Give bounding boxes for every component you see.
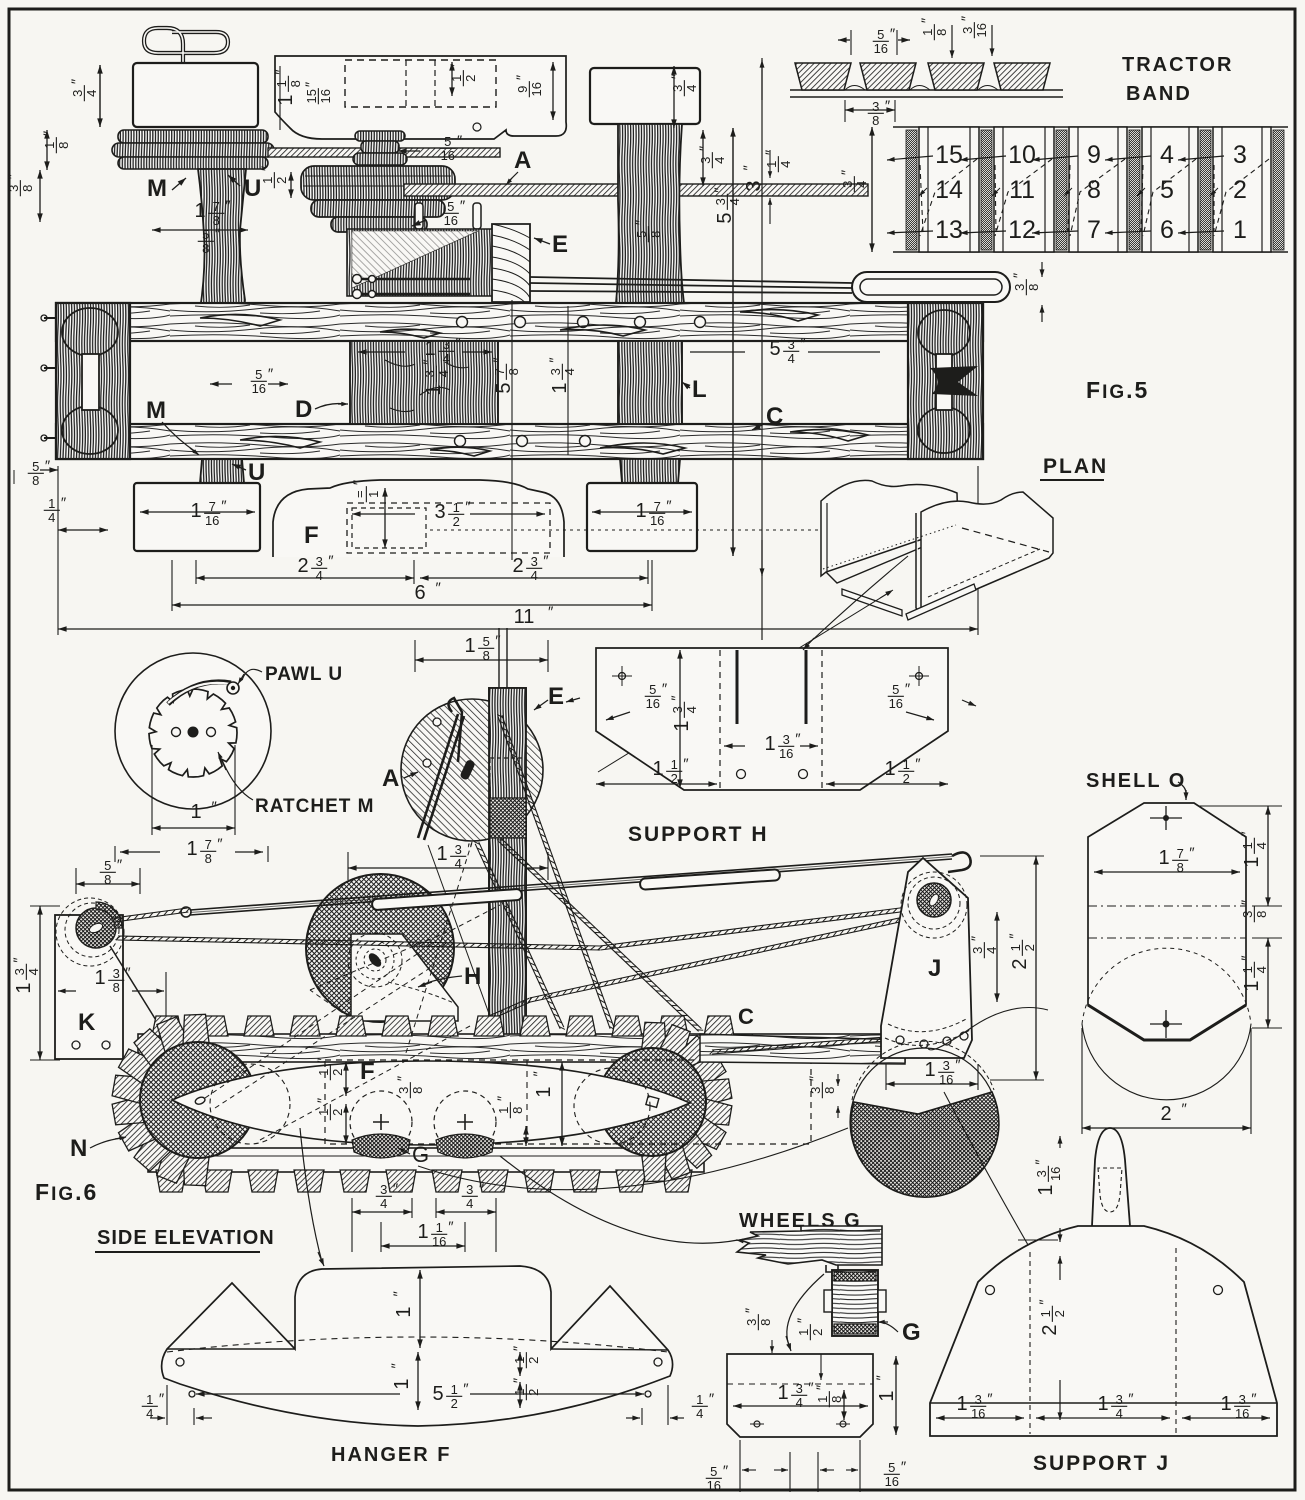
svg-text:″: ″ [5, 173, 22, 179]
svg-text:2: 2 [1052, 1310, 1067, 1317]
svg-text:″: ″ [455, 336, 461, 353]
svg-text:6: 6 [1160, 216, 1174, 244]
svg-text:1: 1 [671, 720, 693, 731]
svg-text:3: 3 [6, 185, 21, 192]
svg-text:4: 4 [380, 1196, 387, 1211]
svg-text:3: 3 [743, 180, 765, 191]
svg-text:10: 10 [1008, 141, 1036, 169]
svg-text:2: 2 [330, 1109, 345, 1116]
svg-text:16: 16 [441, 148, 455, 163]
svg-text:1: 1 [512, 1389, 527, 1396]
svg-text:1: 1 [42, 142, 57, 149]
svg-text:5: 5 [493, 382, 515, 393]
svg-text:3: 3 [970, 947, 985, 954]
svg-text:C: C [738, 1004, 754, 1029]
svg-text:″: ″ [303, 81, 320, 87]
svg-text:1: 1 [190, 801, 201, 823]
svg-text:4: 4 [984, 947, 999, 954]
svg-text:F: F [360, 1058, 375, 1085]
svg-text:3: 3 [443, 337, 450, 352]
svg-text:16: 16 [444, 213, 458, 228]
svg-text:″: ″ [905, 681, 911, 698]
svg-text:16: 16 [529, 82, 544, 96]
svg-text:11: 11 [1009, 176, 1035, 204]
svg-text:″: ″ [890, 26, 896, 43]
svg-text:3: 3 [380, 1182, 387, 1197]
svg-text:1: 1 [652, 758, 663, 780]
svg-text:4: 4 [455, 856, 462, 871]
svg-text:16: 16 [889, 696, 903, 711]
svg-text:U: U [244, 175, 261, 202]
svg-text:7: 7 [492, 368, 507, 375]
svg-text:8: 8 [648, 231, 663, 238]
svg-text:″: ″ [514, 74, 531, 80]
svg-text:1: 1 [1035, 1184, 1057, 1195]
svg-text:J: J [928, 955, 941, 982]
svg-text:1: 1 [146, 1392, 153, 1407]
svg-text:1: 1 [453, 500, 460, 515]
svg-text:″: ″ [159, 1391, 165, 1408]
svg-text:″: ″ [763, 149, 780, 155]
svg-text:″: ″ [1239, 831, 1256, 837]
svg-text:″: ″ [395, 1075, 412, 1081]
svg-text:2: 2 [453, 514, 460, 529]
svg-text:7: 7 [213, 199, 220, 214]
svg-text:4: 4 [712, 157, 727, 164]
svg-text:1: 1 [48, 496, 55, 511]
svg-text:1: 1 [764, 733, 775, 755]
svg-text:2: 2 [330, 1069, 345, 1076]
svg-text:4: 4 [1254, 966, 1269, 973]
svg-text:3: 3 [960, 27, 975, 34]
svg-text:″: ″ [315, 1057, 332, 1063]
svg-text:2: 2 [1233, 176, 1247, 204]
svg-text:″: ″ [531, 1070, 548, 1076]
svg-text:5: 5 [104, 858, 111, 873]
svg-text:″: ″ [495, 1095, 512, 1101]
svg-text:1: 1 [1158, 847, 1169, 869]
svg-text:8: 8 [872, 113, 879, 128]
svg-text:TRACTOR: TRACTOR [1122, 54, 1233, 76]
svg-text:1: 1 [1220, 1393, 1231, 1415]
svg-text:3: 3 [1012, 284, 1027, 291]
svg-text:15: 15 [935, 141, 963, 169]
svg-text:3: 3 [1116, 1392, 1123, 1407]
svg-text:″: ″ [795, 1317, 812, 1323]
svg-text:1: 1 [194, 200, 205, 222]
svg-text:1: 1 [464, 635, 475, 657]
svg-text:1: 1 [316, 1109, 331, 1116]
svg-text:5: 5 [432, 1383, 443, 1405]
svg-text:4: 4 [436, 370, 451, 377]
svg-text:3: 3 [1240, 911, 1255, 918]
svg-text:″: ″ [217, 836, 223, 853]
svg-text:4: 4 [443, 351, 450, 366]
svg-text:4: 4 [1160, 141, 1174, 169]
svg-text:″: ″ [800, 336, 806, 353]
svg-text:4: 4 [48, 510, 55, 525]
svg-text:″: ″ [511, 1345, 528, 1351]
svg-text:4: 4 [146, 1406, 153, 1421]
svg-text:″: ″ [712, 187, 729, 193]
svg-text:A: A [382, 765, 399, 792]
svg-text:″: ″ [215, 226, 221, 243]
svg-text:8: 8 [822, 1087, 837, 1094]
svg-text:3: 3 [466, 1182, 473, 1197]
svg-text:2: 2 [1039, 1324, 1061, 1335]
svg-text:F: F [304, 522, 319, 549]
svg-text:4: 4 [854, 181, 869, 188]
svg-text:4: 4 [727, 198, 742, 205]
svg-text:″: ″ [807, 1075, 824, 1081]
svg-text:″: ″ [959, 15, 976, 21]
svg-text:″: ″ [351, 479, 368, 485]
svg-text:″: ″ [117, 857, 123, 874]
svg-text:2: 2 [1022, 944, 1037, 951]
svg-text:″: ″ [212, 799, 218, 816]
svg-text:″: ″ [391, 1290, 408, 1296]
svg-text:8: 8 [113, 980, 120, 995]
svg-text:″: ″ [547, 357, 564, 363]
svg-text:″: ″ [1033, 1159, 1050, 1165]
svg-text:2: 2 [903, 771, 910, 786]
svg-text:RATCHET M: RATCHET M [255, 796, 374, 817]
svg-text:1: 1 [316, 1069, 331, 1076]
svg-text:12: 12 [1008, 216, 1036, 244]
svg-text:M: M [147, 175, 167, 202]
svg-text:3: 3 [531, 554, 538, 569]
svg-text:″: ″ [669, 695, 686, 701]
svg-text:3: 3 [788, 337, 795, 352]
svg-text:″: ″ [491, 357, 508, 363]
svg-text:7: 7 [1087, 216, 1101, 244]
svg-text:″: ″ [839, 169, 856, 175]
svg-text:3: 3 [548, 368, 563, 375]
svg-text:″: ″ [795, 731, 801, 748]
svg-text:″: ″ [268, 366, 274, 383]
svg-text:4: 4 [778, 161, 793, 168]
svg-text:″: ″ [511, 1377, 528, 1383]
svg-text:1: 1 [436, 1220, 443, 1235]
svg-text:16: 16 [707, 1478, 721, 1493]
svg-text:16: 16 [974, 23, 989, 37]
svg-text:″: ″ [1037, 1299, 1054, 1305]
svg-text:2: 2 [810, 1329, 825, 1336]
svg-text:1: 1 [764, 161, 779, 168]
svg-text:1: 1 [417, 1221, 428, 1243]
svg-text:1: 1 [884, 758, 895, 780]
svg-text:1: 1 [1240, 842, 1255, 849]
svg-text:″: ″ [315, 1097, 332, 1103]
svg-text:5: 5 [202, 227, 209, 242]
svg-text:16: 16 [971, 1406, 985, 1421]
svg-text:3: 3 [434, 501, 445, 523]
svg-text:3: 3 [670, 706, 685, 713]
svg-text:8: 8 [104, 872, 111, 887]
svg-text:3: 3 [455, 842, 462, 857]
svg-text:1: 1 [1233, 216, 1247, 244]
svg-text:1: 1 [956, 1393, 967, 1415]
svg-text:″: ″ [389, 1362, 406, 1368]
svg-text:1: 1 [190, 500, 201, 522]
svg-text:1: 1 [876, 1390, 898, 1401]
svg-text:″: ″ [457, 133, 463, 150]
svg-text:4: 4 [1116, 1406, 1123, 1421]
svg-text:5: 5 [483, 634, 490, 649]
svg-text:1: 1 [903, 757, 910, 772]
svg-text:K: K [78, 1009, 96, 1036]
svg-text:A: A [514, 147, 531, 174]
svg-text:=: = [352, 490, 367, 498]
svg-text:1: 1 [533, 1086, 555, 1097]
svg-text:8: 8 [1026, 284, 1041, 291]
svg-text:1: 1 [1038, 1310, 1053, 1317]
svg-text:1: 1 [1241, 980, 1263, 991]
svg-text:3: 3 [796, 1381, 803, 1396]
svg-text:2: 2 [526, 1357, 541, 1364]
svg-text:1: 1 [671, 757, 678, 772]
svg-text:8: 8 [56, 142, 71, 149]
svg-text:2: 2 [297, 555, 308, 577]
svg-text:″: ″ [874, 1374, 891, 1380]
svg-text:3: 3 [1233, 141, 1247, 169]
svg-text:″: ″ [328, 553, 334, 570]
svg-text:″: ″ [225, 198, 231, 215]
svg-text:8: 8 [1087, 176, 1101, 204]
svg-text:2: 2 [463, 75, 478, 82]
svg-text:2: 2 [671, 771, 678, 786]
svg-text:″: ″ [69, 78, 86, 84]
svg-text:5: 5 [1160, 176, 1174, 204]
svg-text:2: 2 [1160, 1103, 1171, 1125]
svg-text:3: 3 [975, 1392, 982, 1407]
svg-text:14: 14 [935, 176, 963, 204]
svg-text:9: 9 [515, 86, 530, 93]
svg-text:3: 3 [744, 1319, 759, 1326]
svg-text:″: ″ [633, 219, 650, 225]
svg-text:″: ″ [723, 1463, 729, 1480]
svg-text:3: 3 [872, 99, 879, 114]
svg-text:″: ″ [465, 499, 471, 516]
svg-text:1: 1 [696, 1392, 703, 1407]
svg-text:HANGER F: HANGER F [331, 1444, 451, 1466]
svg-text:″: ″ [1182, 1101, 1188, 1118]
svg-text:1: 1 [1241, 856, 1263, 867]
svg-text:3: 3 [670, 85, 685, 92]
svg-text:4: 4 [796, 1395, 803, 1410]
svg-text:″: ″ [548, 604, 554, 621]
svg-text:11: 11 [514, 606, 535, 628]
svg-text:″: ″ [61, 495, 67, 512]
svg-text:2: 2 [451, 1396, 458, 1411]
svg-text:1: 1 [496, 1107, 511, 1114]
svg-text:1: 1 [1008, 944, 1023, 951]
svg-text:″: ″ [919, 17, 936, 23]
svg-text:3: 3 [1239, 1392, 1246, 1407]
svg-text:″: ″ [1011, 272, 1028, 278]
svg-text:4: 4 [684, 85, 699, 92]
svg-text:G: G [412, 1142, 429, 1167]
svg-text:″: ″ [421, 359, 438, 365]
svg-text:16: 16 [1048, 1167, 1063, 1181]
svg-text:5: 5 [769, 338, 780, 360]
svg-text:5: 5 [634, 231, 649, 238]
svg-text:16: 16 [779, 746, 793, 761]
svg-text:″: ″ [709, 1391, 715, 1408]
svg-text:5: 5 [892, 682, 899, 697]
svg-text:2: 2 [1009, 958, 1031, 969]
svg-text:U: U [248, 459, 265, 486]
svg-text:″: ″ [987, 1391, 993, 1408]
svg-text:4: 4 [466, 1196, 473, 1211]
svg-text:8: 8 [510, 1107, 525, 1114]
svg-text:1: 1 [796, 1329, 811, 1336]
svg-text:8: 8 [1177, 860, 1184, 875]
svg-text:″: ″ [393, 1181, 399, 1198]
svg-text:″: ″ [436, 580, 442, 597]
svg-text:1: 1 [94, 967, 105, 989]
svg-text:2: 2 [512, 555, 523, 577]
svg-text:3: 3 [840, 181, 855, 188]
svg-text:1: 1 [777, 1382, 788, 1404]
svg-text:″: ″ [460, 198, 466, 215]
svg-text:16: 16 [939, 1072, 953, 1087]
svg-text:1: 1 [815, 1396, 830, 1403]
svg-text:″: ″ [969, 935, 986, 941]
svg-text:1: 1 [275, 94, 297, 105]
svg-text:3: 3 [1034, 1170, 1049, 1177]
svg-text:16: 16 [646, 696, 660, 711]
svg-text:5: 5 [444, 134, 451, 149]
svg-text:1: 1 [1097, 1393, 1108, 1415]
svg-text:4: 4 [788, 351, 795, 366]
svg-text:″: ″ [955, 1057, 961, 1074]
svg-text:1: 1 [13, 982, 35, 993]
svg-text:2: 2 [526, 1389, 541, 1396]
svg-text:16: 16 [252, 381, 266, 396]
svg-text:″: ″ [1251, 1391, 1257, 1408]
svg-text:1: 1 [1240, 966, 1255, 973]
svg-text:PLAN: PLAN [1043, 455, 1108, 478]
svg-text:SHELL O: SHELL O [1086, 770, 1186, 792]
svg-text:7: 7 [205, 837, 212, 852]
svg-text:16: 16 [205, 513, 219, 528]
svg-text:9: 9 [1087, 141, 1101, 169]
svg-text:″: ″ [273, 69, 290, 75]
svg-text:1: 1 [635, 500, 646, 522]
svg-text:8: 8 [1254, 911, 1269, 918]
svg-text:N: N [70, 1135, 87, 1162]
svg-text:8: 8 [483, 648, 490, 663]
svg-text:16: 16 [885, 1474, 899, 1489]
svg-text:4: 4 [684, 706, 699, 713]
svg-text:E: E [552, 231, 568, 258]
svg-text:5: 5 [710, 1464, 717, 1479]
svg-text:3: 3 [396, 1087, 411, 1094]
svg-text:1: 1 [393, 1306, 415, 1317]
svg-text:SUPPORT H: SUPPORT H [628, 823, 769, 846]
svg-text:1: 1 [451, 1382, 458, 1397]
svg-text:″: ″ [1239, 899, 1256, 905]
svg-text:3: 3 [783, 732, 790, 747]
svg-text:1: 1 [436, 843, 447, 865]
svg-text:SUPPORT J: SUPPORT J [1033, 1452, 1170, 1475]
svg-text:1: 1 [424, 338, 435, 360]
svg-text:4: 4 [26, 968, 41, 975]
svg-text:16: 16 [1235, 1406, 1249, 1421]
svg-text:″: ″ [915, 756, 921, 773]
svg-text:4: 4 [316, 568, 323, 583]
svg-text:1: 1 [920, 29, 935, 36]
svg-text:8: 8 [20, 185, 35, 192]
svg-text:5: 5 [255, 367, 262, 382]
svg-text:1: 1 [924, 1059, 935, 1081]
svg-text:″: ″ [697, 145, 714, 151]
svg-text:L: L [692, 376, 707, 403]
svg-text:″: ″ [463, 1381, 469, 1398]
svg-text:1: 1 [423, 384, 445, 395]
svg-text:1: 1 [366, 491, 381, 498]
svg-text:4: 4 [84, 90, 99, 97]
svg-text:8: 8 [934, 29, 949, 36]
svg-text:8: 8 [205, 851, 212, 866]
svg-text:4: 4 [531, 568, 538, 583]
svg-text:1: 1 [186, 838, 197, 860]
svg-text:3: 3 [422, 370, 437, 377]
svg-text:4: 4 [562, 368, 577, 375]
svg-text:E: E [548, 683, 564, 710]
svg-text:″: ″ [543, 553, 549, 570]
svg-text:5: 5 [877, 27, 884, 42]
svg-text:BAND: BAND [1126, 83, 1192, 105]
svg-text:3: 3 [316, 554, 323, 569]
svg-text:″: ″ [901, 1459, 907, 1476]
svg-text:5: 5 [888, 1460, 895, 1475]
svg-text:4: 4 [1254, 842, 1269, 849]
svg-text:5: 5 [32, 459, 39, 474]
svg-text:″: ″ [1007, 933, 1024, 939]
svg-text:13: 13 [935, 216, 963, 244]
svg-text:″: ″ [448, 1219, 454, 1236]
svg-text:4: 4 [696, 1406, 703, 1421]
svg-text:3: 3 [113, 966, 120, 981]
svg-text:″: ″ [41, 130, 58, 136]
svg-text:6: 6 [414, 582, 425, 604]
svg-text:″: ″ [1128, 1391, 1134, 1408]
svg-text:3: 3 [943, 1058, 950, 1073]
svg-text:″: ″ [662, 681, 668, 698]
svg-text:5: 5 [714, 212, 736, 223]
svg-text:M: M [146, 397, 166, 424]
svg-text:″: ″ [741, 164, 758, 170]
svg-text:16: 16 [874, 41, 888, 56]
svg-text:″: ″ [683, 756, 689, 773]
svg-text:5: 5 [447, 199, 454, 214]
svg-text:PAWL U: PAWL U [265, 664, 343, 685]
svg-text:″: ″ [259, 165, 276, 171]
svg-text:″: ″ [669, 73, 686, 79]
svg-text:″: ″ [495, 633, 501, 650]
svg-text:C: C [766, 403, 783, 430]
svg-text:7: 7 [1177, 846, 1184, 861]
svg-text:8: 8 [829, 1396, 844, 1403]
svg-text:G: G [902, 1319, 921, 1346]
svg-text:16: 16 [318, 89, 333, 103]
svg-text:5: 5 [649, 682, 656, 697]
svg-text:″: ″ [814, 1384, 831, 1390]
svg-text:1: 1 [512, 1357, 527, 1364]
svg-text:8: 8 [288, 80, 303, 87]
